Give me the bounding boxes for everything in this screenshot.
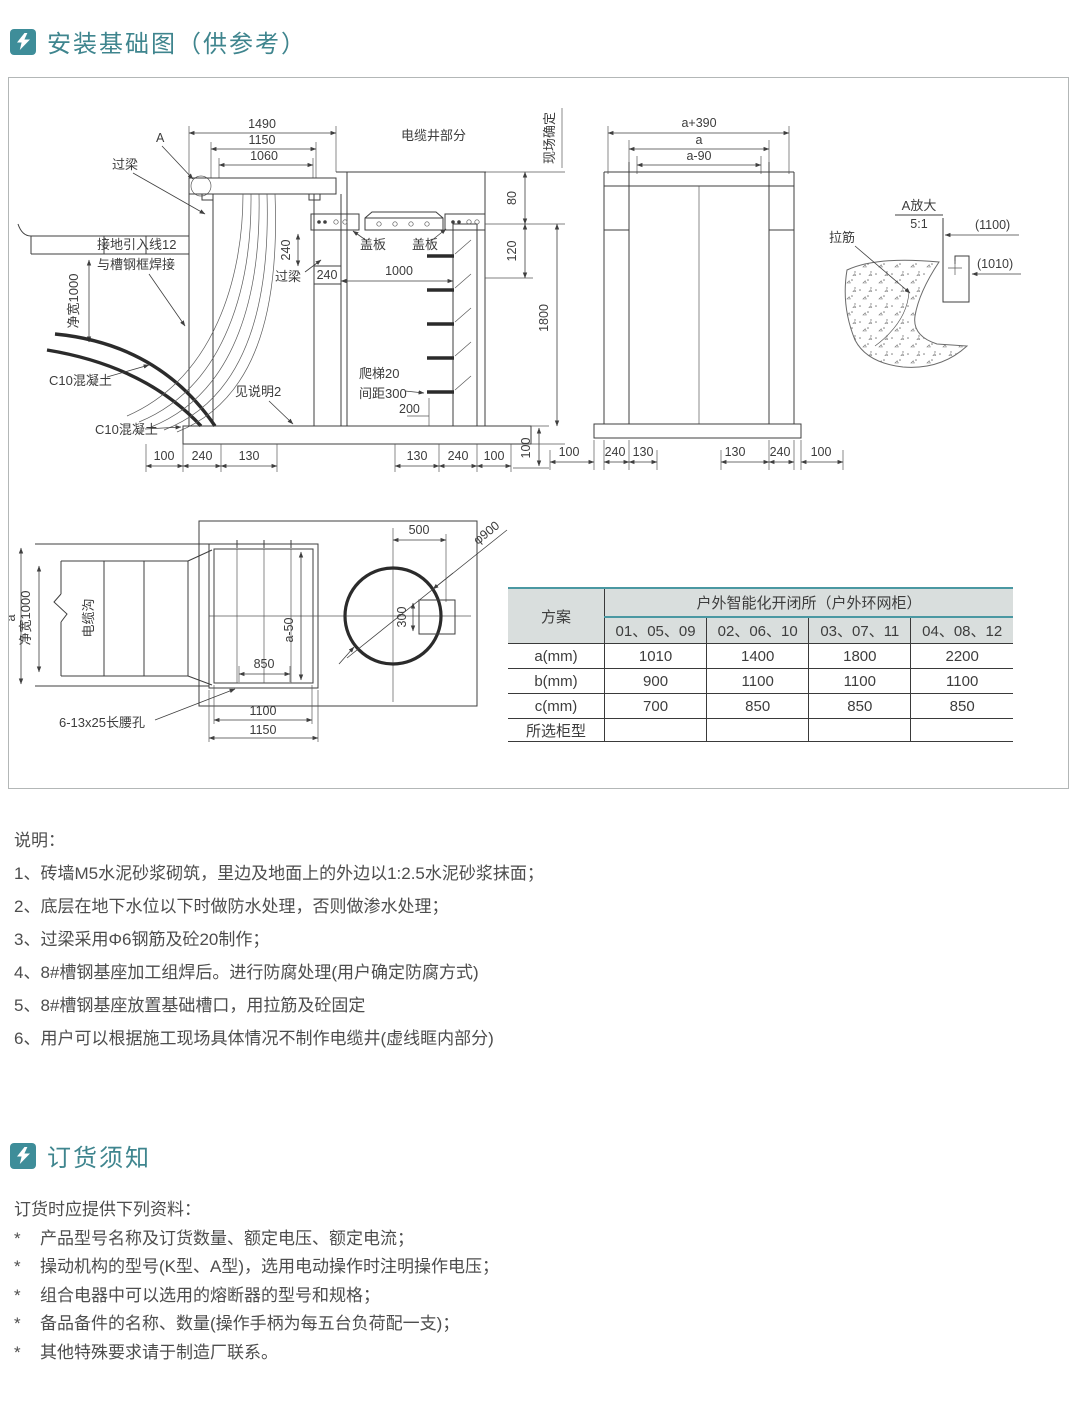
label-see-note-2: 见说明2 — [235, 384, 281, 399]
dim-1000: 1000 — [385, 264, 413, 278]
lightning-icon — [10, 29, 36, 55]
bullet-marker: * — [14, 1253, 40, 1282]
dim-240-vertical: 240 — [279, 240, 293, 261]
notes-block: 说明： 1、砖墙M5水泥砂浆砌筑，里边及地面上的外边以1:2.5水泥砂浆抹面； … — [14, 824, 544, 1055]
note-item-2: 2、底层在地下水位以下时做防水处理，否则做渗水处理； — [14, 890, 544, 923]
dim-120: 120 — [505, 241, 519, 262]
plan-view-drawing: a 净宽1000 电缆沟 a-50 850 1100 1150 6-13x25长… — [9, 518, 507, 742]
notes-title: 说明： — [14, 824, 544, 857]
section-view-drawing: 1490 1150 1060 A 过梁 接地引入线12 与槽钢框焊接 净宽100… — [18, 108, 565, 472]
table-cell: 2200 — [911, 644, 1013, 669]
row-label-a: a(mm) — [508, 644, 605, 669]
table-cell: 850 — [707, 694, 809, 719]
bullet-marker: * — [14, 1225, 40, 1254]
front-dim-130-right: 130 — [725, 445, 746, 459]
dim-phi900: φ900 — [471, 518, 502, 547]
plan-dim-1150: 1150 — [250, 723, 277, 737]
table-subcol: 03、07、11 — [809, 617, 911, 644]
table-cell: 700 — [605, 694, 707, 719]
table-cell-empty — [809, 719, 911, 742]
ordering-item-text: 操动机构的型号(K型、A型)，选用电动操作时注明操作电压； — [40, 1257, 499, 1276]
bullet-marker: * — [14, 1339, 40, 1368]
label-cover-plate-2: 盖板 — [412, 237, 438, 252]
dim-100-vertical: 100 — [519, 438, 533, 459]
table-cell-empty — [707, 719, 809, 742]
dim-850: 850 — [254, 657, 275, 671]
label-a: A — [156, 131, 165, 145]
dim-240: 240 — [317, 268, 338, 282]
label-site-determined: 现场确定 — [542, 112, 557, 164]
table-cell-empty — [605, 719, 707, 742]
ordering-item-text: 备品备件的名称、数量(操作手柄为每五台负荷配一支)； — [40, 1314, 459, 1333]
table-cell: 850 — [809, 694, 911, 719]
label-cable-well-part: 电缆井部分 — [401, 128, 466, 143]
note-item-6: 6、用户可以根据施工现场具体情况不制作电缆井(虚线眶内部分) — [14, 1022, 544, 1055]
front-dim-240-right: 240 — [770, 445, 791, 459]
plan-label-net-width: 净宽1000 — [18, 591, 33, 646]
dim-bottom-left-240: 240 — [192, 449, 213, 463]
label-c10-concrete-1: C10混凝土 — [49, 373, 112, 388]
dim-bottom-right-240: 240 — [448, 449, 469, 463]
dim-a-minus-50: a-50 — [282, 617, 296, 642]
dim-a: a — [696, 133, 703, 147]
table-cell: 1010 — [605, 644, 707, 669]
note-item-3: 3、过梁采用Φ6钢筋及砼20制作； — [14, 923, 544, 956]
ordering-item-2: *操动机构的型号(K型、A型)，选用电动操作时注明操作电压； — [14, 1253, 499, 1282]
label-c10-concrete-2: C10混凝土 — [95, 422, 158, 437]
dim-bottom-right-130: 130 — [407, 449, 428, 463]
label-net-width-section: 净宽1000 — [66, 274, 81, 329]
front-view-drawing: a+390 a a-90 100 240 130 130 240 100 — [550, 116, 843, 470]
label-ground-wire-1: 接地引入线12 — [97, 237, 176, 252]
row-label-b: b(mm) — [508, 669, 605, 694]
label-ground-wire-2: 与槽钢框焊接 — [97, 257, 175, 272]
dim-200: 200 — [399, 402, 420, 416]
ordering-intro: 订货时应提供下列资料： — [14, 1196, 499, 1225]
detail-scale: 5:1 — [910, 217, 927, 231]
bullet-marker: * — [14, 1310, 40, 1339]
dim-1100-paren: (1100) — [975, 218, 1010, 232]
ordering-item-text: 组合电器中可以选用的熔断器的型号和规格； — [40, 1286, 380, 1305]
lightning-icon — [10, 1143, 36, 1169]
dim-1490: 1490 — [248, 117, 276, 131]
note-item-5: 5、8#槽钢基座放置基础槽口，用拉筋及砼固定 — [14, 989, 544, 1022]
note-item-4: 4、8#槽钢基座加工组焊后。进行防腐处理(用户确定防腐方式) — [14, 956, 544, 989]
table-cell: 1100 — [707, 669, 809, 694]
dim-a-minus-90: a-90 — [686, 149, 711, 163]
install-section-header: 安装基础图（供参考） — [10, 24, 307, 59]
label-ladder-spacing: 间距300 — [359, 386, 407, 401]
ordering-item-3: *组合电器中可以选用的熔断器的型号和规格； — [14, 1282, 499, 1311]
table-cell: 850 — [911, 694, 1013, 719]
table-subcol: 01、05、09 — [605, 617, 707, 644]
label-guoliang-top: 过梁 — [112, 157, 138, 172]
plan-dim-a: a — [9, 614, 18, 621]
table-subcol: 04、08、12 — [911, 617, 1013, 644]
plan-dim-1100: 1100 — [250, 704, 277, 718]
dim-1150: 1150 — [249, 133, 276, 147]
table-header-group: 户外智能化开闭所（户外环网柜） — [605, 588, 1014, 617]
dim-bottom-right-100: 100 — [484, 449, 505, 463]
table-row: a(mm) 1010 1400 1800 2200 — [508, 644, 1013, 669]
table-cell: 1100 — [809, 669, 911, 694]
table-header-plan: 方案 — [508, 588, 605, 644]
table-cell: 1400 — [707, 644, 809, 669]
dim-1800: 1800 — [537, 304, 551, 332]
order-section-title: 订货须知 — [47, 1138, 151, 1173]
table-row: b(mm) 900 1100 1100 1100 — [508, 669, 1013, 694]
bullet-marker: * — [14, 1282, 40, 1311]
table-cell: 900 — [605, 669, 707, 694]
label-lajin: 拉筋 — [829, 230, 855, 245]
table-cell: 1800 — [809, 644, 911, 669]
dim-bottom-left-130: 130 — [239, 449, 260, 463]
ordering-item-1: *产品型号名称及订货数量、额定电压、额定电流； — [14, 1225, 499, 1254]
ordering-item-4: *备品备件的名称、数量(操作手柄为每五台负荷配一支)； — [14, 1310, 499, 1339]
table-cell-empty — [911, 719, 1013, 742]
dim-1010-paren: (1010) — [977, 257, 1013, 271]
note-item-1: 1、砖墙M5水泥砂浆砌筑，里边及地面上的外边以1:2.5水泥砂浆抹面； — [14, 857, 544, 890]
label-guoliang-mid: 过梁 — [275, 269, 301, 284]
front-dim-100-left: 100 — [559, 445, 580, 459]
ordering-item-5: *其他特殊要求请于制造厂联系。 — [14, 1339, 499, 1368]
table-row: 所选柜型 — [508, 719, 1013, 742]
ordering-item-text: 其他特殊要求请于制造厂联系。 — [40, 1343, 278, 1362]
ordering-item-text: 产品型号名称及订货数量、额定电压、额定电流； — [40, 1229, 414, 1248]
dim-80: 80 — [505, 191, 519, 205]
label-ladder: 爬梯20 — [359, 366, 399, 381]
dim-1060: 1060 — [250, 149, 278, 163]
detail-title: A放大 — [902, 198, 937, 213]
label-slot-holes: 6-13x25长腰孔 — [59, 715, 145, 730]
front-dim-130-left: 130 — [633, 445, 654, 459]
row-label-selected-cabinet: 所选柜型 — [508, 719, 605, 742]
table-row: c(mm) 700 850 850 850 — [508, 694, 1013, 719]
detail-view-drawing: A放大 5:1 拉筋 (1100) (1010) — [829, 198, 1021, 367]
ordering-block: 订货时应提供下列资料： *产品型号名称及订货数量、额定电压、额定电流； *操动机… — [14, 1196, 499, 1367]
dim-a-plus-390: a+390 — [681, 116, 716, 130]
dim-500: 500 — [409, 523, 430, 537]
cabinet-spec-table: 方案 户外智能化开闭所（户外环网柜） 01、05、09 02、06、10 03、… — [508, 587, 1013, 742]
installation-diagram-panel: 1490 1150 1060 A 过梁 接地引入线12 与槽钢框焊接 净宽100… — [8, 77, 1069, 789]
order-section-header: 订货须知 — [10, 1138, 151, 1173]
dim-bottom-left-100: 100 — [154, 449, 175, 463]
front-dim-100-right: 100 — [811, 445, 832, 459]
label-cable-trench: 电缆沟 — [81, 598, 96, 637]
table-subcol: 02、06、10 — [707, 617, 809, 644]
dim-300: 300 — [395, 607, 409, 628]
label-cover-plate-1: 盖板 — [360, 237, 386, 252]
front-dim-240-left: 240 — [605, 445, 626, 459]
install-section-title: 安装基础图（供参考） — [47, 24, 307, 59]
table-cell: 1100 — [911, 669, 1013, 694]
row-label-c: c(mm) — [508, 694, 605, 719]
